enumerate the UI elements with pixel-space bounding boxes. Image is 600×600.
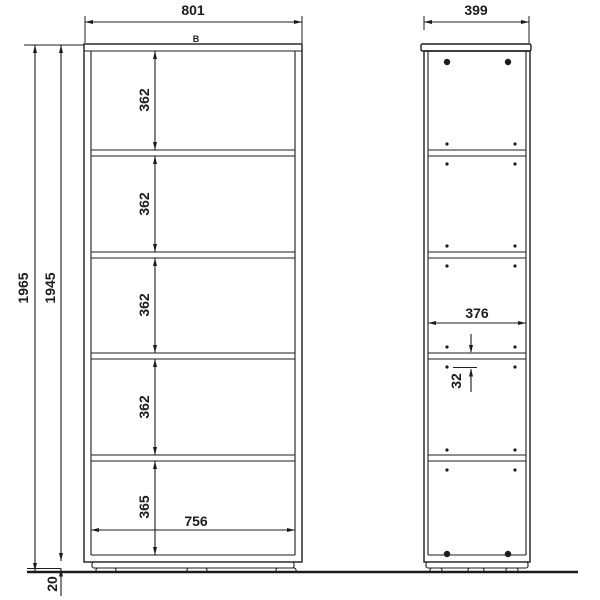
side-inner-depth-dimension: 376 — [428, 305, 526, 323]
section-3-value: 362 — [136, 293, 152, 317]
pin-hole-dot — [513, 448, 516, 451]
hole-spacing-down-arrow — [469, 345, 473, 353]
pin-hole-dot — [513, 162, 516, 165]
front-view: 801 B 1965 1945 20 362 362 362 — [15, 2, 302, 596]
side-depth-extension-lines — [424, 16, 529, 43]
pin-hole-dot — [513, 345, 516, 348]
section-2-value: 362 — [136, 192, 152, 216]
pin-hole-dot — [445, 345, 448, 348]
pin-hole-dot — [445, 142, 448, 145]
technical-drawing-canvas: 801 B 1965 1945 20 362 362 362 — [0, 0, 600, 600]
side-depth-value: 399 — [464, 2, 488, 18]
front-inner-width-value: 756 — [184, 513, 208, 529]
side-panel-inner-lines — [428, 51, 526, 555]
pin-hole-dot — [513, 264, 516, 267]
pin-hole-dot — [513, 468, 516, 471]
side-top-panel — [421, 44, 531, 51]
front-overall-height-value: 1965 — [15, 272, 31, 303]
section-1-value: 362 — [136, 88, 152, 112]
front-panel-inner-lines — [84, 51, 302, 555]
front-cabinet-outline — [84, 44, 302, 573]
pin-hole-dot — [445, 162, 448, 165]
front-body-height-value: 1945 — [42, 272, 58, 303]
pin-hole-dot — [513, 365, 516, 368]
pin-hole-dot — [445, 264, 448, 267]
pin-hole-dot — [513, 244, 516, 247]
side-plinth — [426, 562, 528, 568]
cabinet-dimension-drawing: 801 B 1965 1945 20 362 362 362 — [0, 0, 600, 600]
pin-hole-dot — [445, 365, 448, 368]
screw-dot-bottom-right — [505, 551, 511, 557]
screw-dot-top-right — [505, 59, 511, 65]
section-4-value: 362 — [136, 395, 152, 419]
side-view: 399 376 32 — [421, 2, 531, 573]
front-inner-width-dimension: 756 — [91, 513, 295, 530]
front-height-dimensions: 1965 1945 — [15, 45, 84, 571]
front-marker-label: B — [193, 34, 200, 44]
side-hole-spacing-dimension: 32 — [448, 334, 477, 392]
side-hole-spacing-value: 32 — [448, 373, 464, 389]
front-base-height-value: 20 — [44, 576, 60, 592]
pin-hole-dot — [445, 468, 448, 471]
front-shelf-lines — [91, 150, 295, 461]
pin-hole-dot — [513, 142, 516, 145]
section-5-value: 365 — [136, 495, 152, 519]
front-width-value: 801 — [181, 2, 205, 18]
front-width-dimension: 801 B — [85, 2, 302, 44]
screw-dot-bottom-left — [444, 551, 450, 557]
front-section-dimensions: 362 362 362 362 365 — [136, 51, 155, 555]
side-inner-depth-value: 376 — [465, 305, 489, 321]
side-depth-dimension: 399 — [424, 2, 529, 43]
screw-dot-top-left — [444, 59, 450, 65]
front-cabinet-body — [84, 44, 302, 562]
front-plinth — [92, 562, 294, 568]
pin-hole-dot — [445, 244, 448, 247]
pin-hole-dot — [445, 448, 448, 451]
